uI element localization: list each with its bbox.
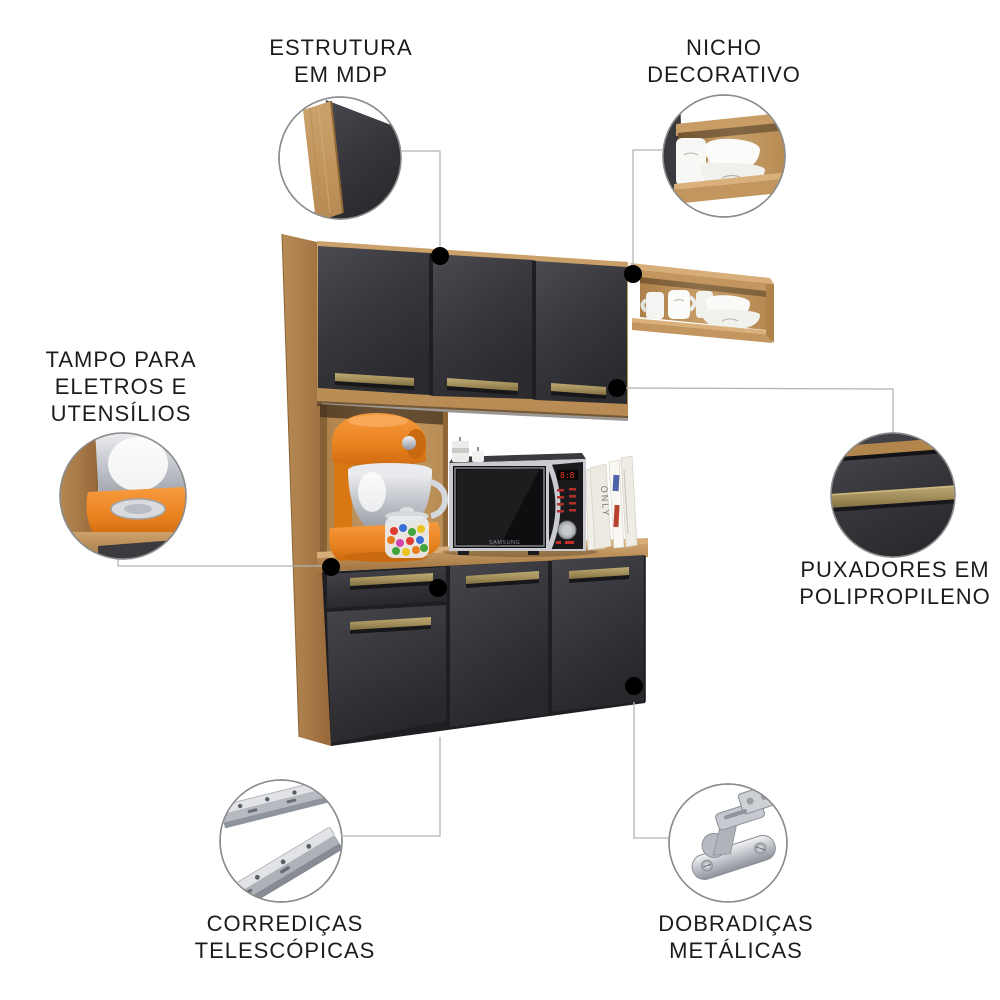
label-tampo: TAMPO PARA ELETROS E UTENSÍLIOS: [46, 346, 197, 427]
callout-dot-estrutura: [431, 247, 449, 265]
candles: [452, 437, 484, 462]
callout-circle-dobradicas: [669, 784, 792, 902]
label-line: CORREDIÇAS: [195, 910, 376, 937]
callout-dot-dobradicas: [625, 677, 643, 695]
label-line: EM MDP: [269, 61, 412, 88]
callout-dot-tampo: [322, 558, 340, 576]
microwave: 8:8 SAMSUNG: [442, 453, 598, 557]
svg-text:8:8: 8:8: [560, 471, 575, 480]
label-line: PUXADORES EM: [799, 556, 991, 583]
callout-dot-puxadores: [608, 379, 626, 397]
callout-circle-puxadores: [828, 430, 958, 560]
label-puxadores: PUXADORES EM POLIPROPILENO: [799, 556, 991, 610]
label-line: METÁLICAS: [658, 937, 813, 964]
callout-circle-tampo: [55, 427, 190, 563]
label-line: NICHO: [647, 34, 801, 61]
label-line: TELESCÓPICAS: [195, 937, 376, 964]
label-dobradicas: DOBRADIÇAS METÁLICAS: [658, 910, 813, 964]
leader-line-puxadores: [617, 388, 893, 433]
label-line: DOBRADIÇAS: [658, 910, 813, 937]
microwave-brand-text: SAMSUNG: [489, 540, 520, 546]
leader-line-corredicas: [343, 737, 440, 836]
callout-dot-nicho: [624, 265, 642, 283]
label-line: TAMPO PARA: [46, 346, 197, 373]
leader-line-estrutura: [402, 151, 440, 256]
product-diagram: 8:8 SAMSUNG ONL: [0, 0, 1000, 1000]
label-line: ELETROS E: [46, 373, 197, 400]
label-estrutura: ESTRUTURA EM MDP: [269, 34, 412, 88]
leader-line-dobradicas: [634, 702, 670, 838]
label-corredicas: CORREDIÇAS TELESCÓPICAS: [195, 910, 376, 964]
candy-jar: [385, 507, 429, 558]
label-line: POLIPROPILENO: [799, 583, 991, 610]
upper-door-middle: [433, 254, 532, 399]
cabinet-scene: 8:8 SAMSUNG ONL: [0, 0, 1000, 1000]
label-nicho: NICHO DECORATIVO: [647, 34, 801, 88]
callout-circle-nicho: [663, 94, 790, 218]
callout-circle-estrutura: [279, 97, 404, 222]
label-line: DECORATIVO: [647, 61, 801, 88]
books: ONLY: [586, 456, 637, 550]
callout-dot-corredicas: [429, 579, 447, 597]
wall-shelf-niche: [630, 263, 774, 343]
label-line: UTENSÍLIOS: [46, 400, 197, 427]
callout-circle-corredicas: [210, 775, 352, 922]
cabinet: 8:8 SAMSUNG ONL: [282, 234, 774, 746]
label-line: ESTRUTURA: [269, 34, 412, 61]
base-door-middle: [450, 561, 548, 727]
leader-line-nicho: [633, 150, 662, 274]
upper-door-left: [318, 246, 429, 395]
base-cabinet: [322, 555, 645, 746]
